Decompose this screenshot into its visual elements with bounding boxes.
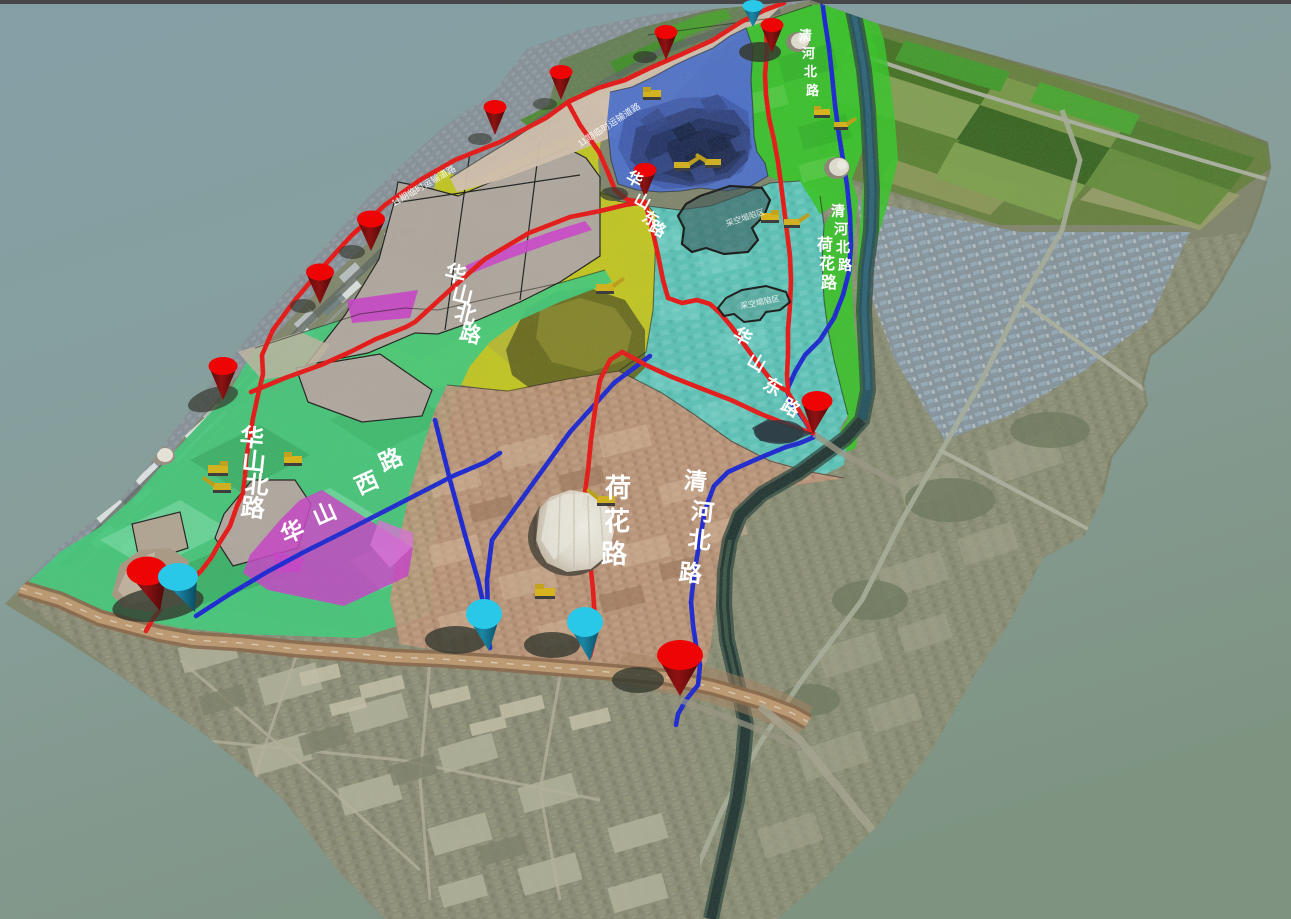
svg-text:河: 河	[802, 46, 815, 61]
svg-text:花: 花	[604, 506, 630, 536]
svg-text:路: 路	[821, 273, 838, 292]
svg-text:北: 北	[804, 64, 817, 79]
svg-text:荷: 荷	[605, 473, 631, 503]
svg-text:清: 清	[831, 203, 845, 219]
svg-text:清: 清	[799, 28, 812, 43]
svg-text:北: 北	[687, 526, 713, 554]
svg-text:花: 花	[819, 254, 835, 273]
svg-text:路: 路	[678, 559, 705, 587]
svg-text:北: 北	[836, 239, 850, 255]
svg-text:路: 路	[601, 539, 628, 569]
svg-text:荷: 荷	[817, 236, 833, 254]
svg-text:路: 路	[806, 83, 820, 98]
svg-text:路: 路	[838, 257, 853, 273]
svg-text:路: 路	[239, 493, 267, 523]
svg-text:清: 清	[683, 467, 709, 495]
svg-text:河: 河	[834, 221, 848, 237]
svg-text:河: 河	[690, 498, 716, 526]
